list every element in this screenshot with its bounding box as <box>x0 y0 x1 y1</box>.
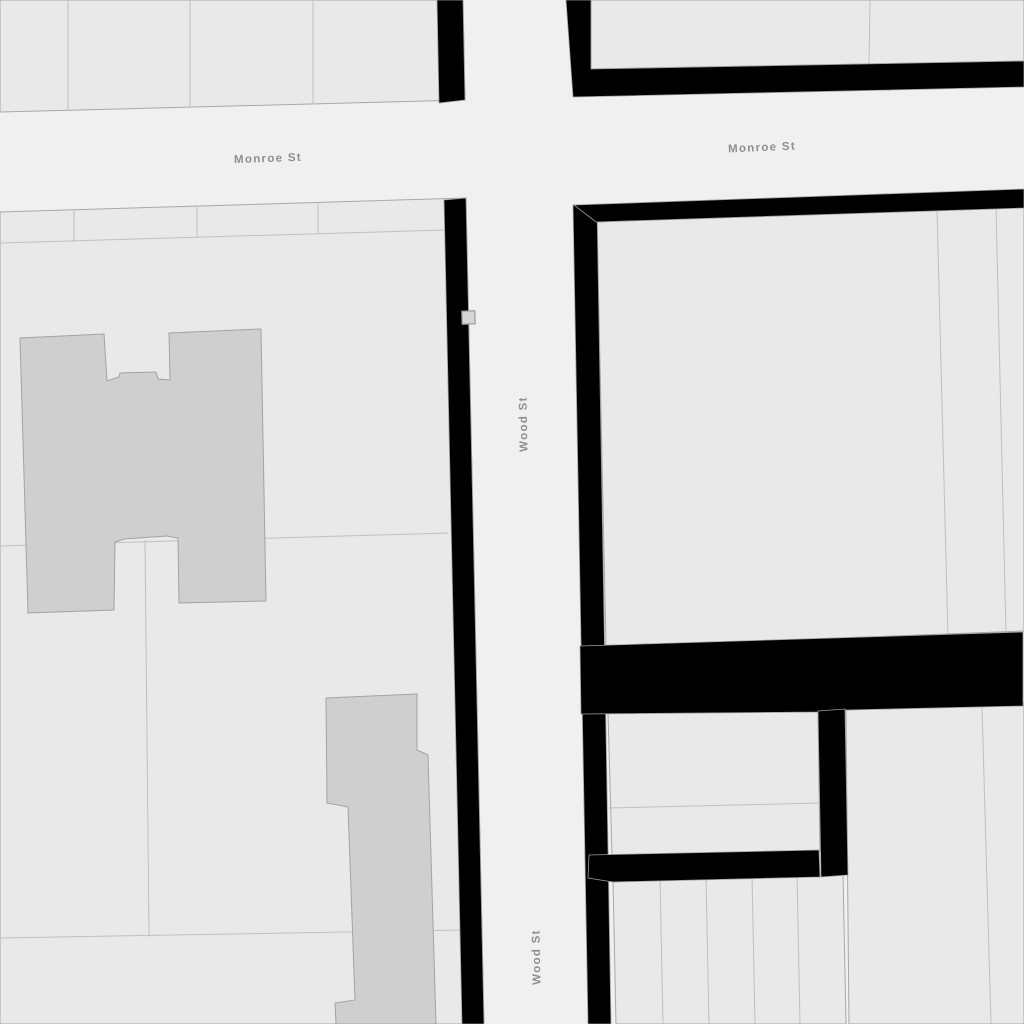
highlight-strip-se-inner <box>818 709 848 877</box>
highlight-strip-nw <box>437 0 465 103</box>
block-southeast-sub-parcel <box>608 710 820 855</box>
street-label-wood-south: Wood St <box>531 929 544 985</box>
map-viewport: Monroe StMonroe StWood StWood St <box>0 0 1024 1024</box>
map-marker[interactable] <box>462 311 475 324</box>
map-canvas[interactable]: Monroe StMonroe StWood StWood St <box>0 0 1024 1024</box>
block-northwest <box>0 0 465 112</box>
street-label-monroe-west: Monroe St <box>234 152 302 166</box>
street-label-wood-north: Wood St <box>518 396 531 452</box>
block-northeast-parcel <box>591 0 1024 69</box>
block-southeast-right-parcel <box>846 703 1024 1024</box>
block-southeast-lot-row <box>613 873 846 1024</box>
block-east-main-parcel <box>597 206 1024 647</box>
highlight-band-east-mid <box>580 632 1023 714</box>
highlight-band-se-bottom <box>588 850 820 882</box>
